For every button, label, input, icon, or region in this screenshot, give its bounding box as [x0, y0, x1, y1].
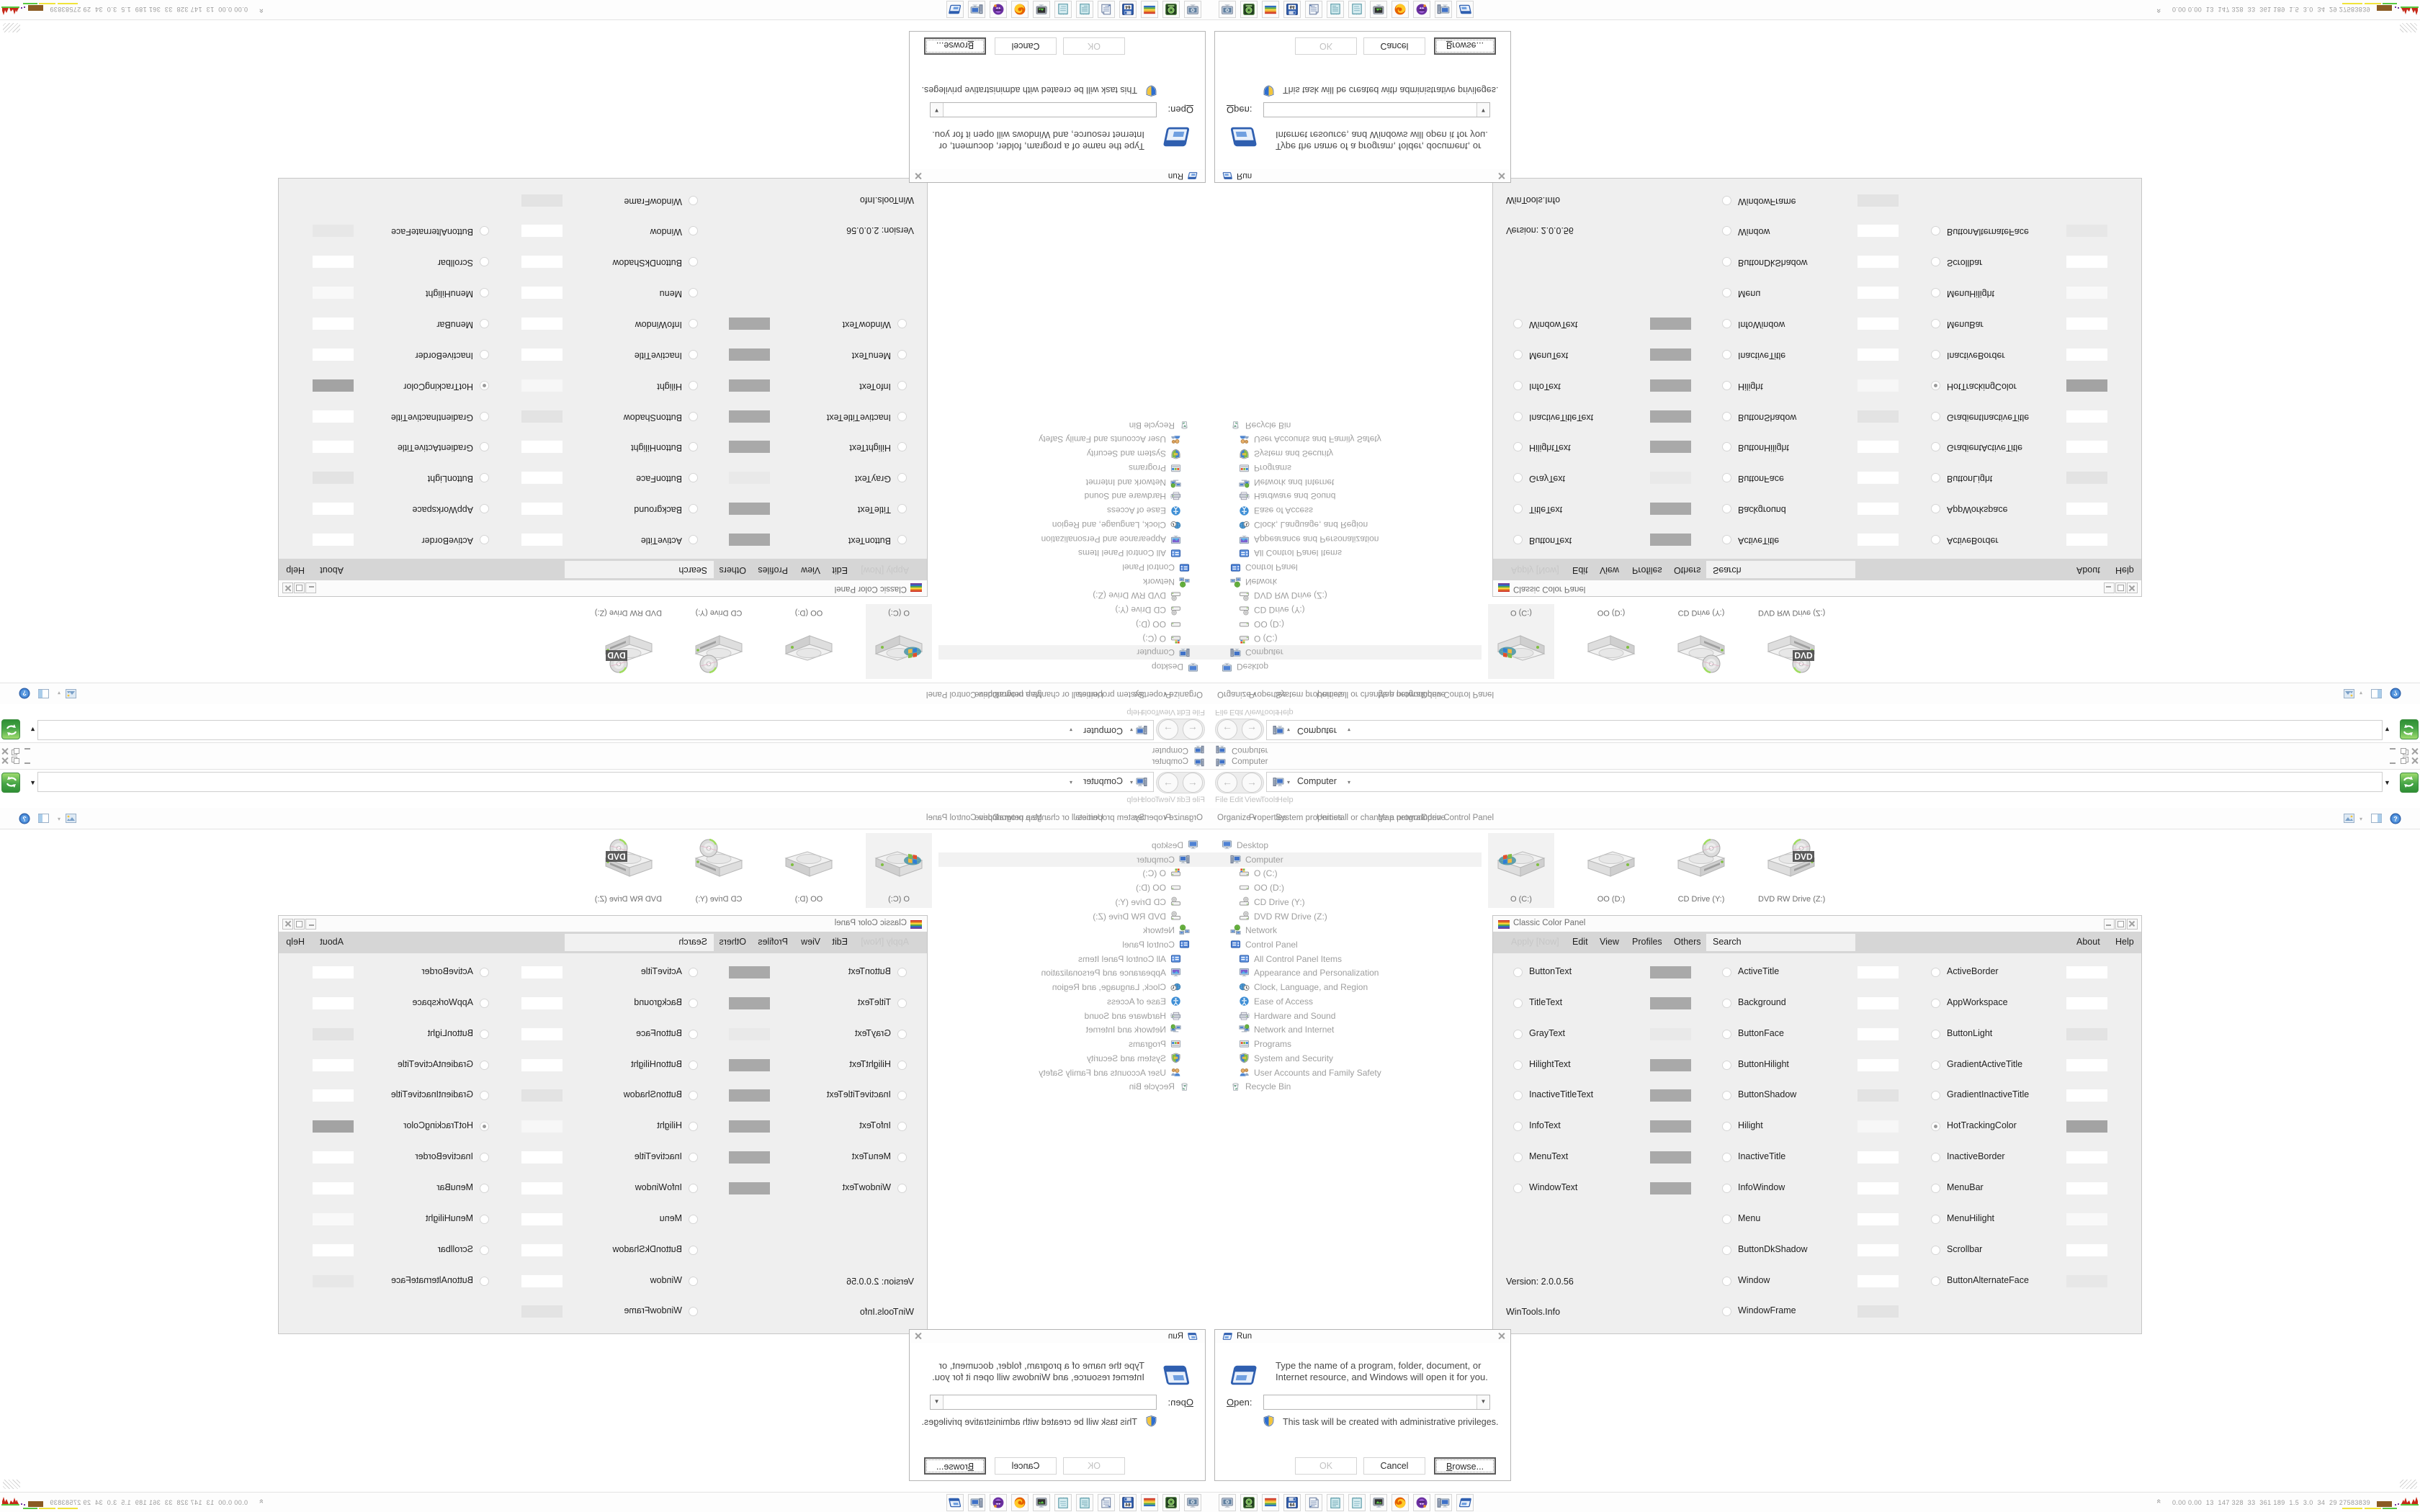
menu-item-tools[interactable]: Tools [1141, 796, 1160, 804]
color-swatch-buttonface[interactable] [521, 472, 563, 484]
color-swatch-gradientinactivetitle[interactable] [313, 410, 354, 423]
minimize-button[interactable] [2104, 582, 2115, 593]
close-icon[interactable] [282, 919, 293, 930]
search-input[interactable]: Search [1706, 934, 1855, 951]
radio-inactivetitletext[interactable] [897, 1091, 907, 1100]
color-label-scrollbar[interactable]: Scrollbar [1947, 258, 1982, 268]
color-swatch-hilighttext[interactable] [1650, 1059, 1691, 1071]
views-icon[interactable] [2344, 685, 2354, 698]
taskbar-app-notepad[interactable] [1327, 1494, 1344, 1511]
color-label-menu[interactable]: Menu [660, 289, 682, 299]
refresh-go-button[interactable] [1, 773, 20, 793]
command-open-control-panel[interactable]: Open Control Panel [1421, 814, 1494, 822]
close-icon[interactable] [1497, 171, 1506, 180]
color-swatch-gradientactivetitle[interactable] [313, 1059, 354, 1071]
color-swatch-buttonface[interactable] [1857, 1028, 1899, 1040]
help-icon[interactable]: ? [19, 813, 30, 828]
radio-gradientactivetitle[interactable] [1931, 442, 1940, 451]
ccp-menu-edit[interactable]: Edit [1572, 937, 1588, 947]
tree-item-network-and-internet[interactable]: Network and Internet [1210, 475, 1482, 490]
close-icon[interactable] [1497, 1332, 1506, 1341]
ccp-menu-about[interactable]: About [320, 937, 344, 947]
color-swatch-hilighttext[interactable] [729, 1059, 770, 1071]
radio-menuhilight[interactable] [1931, 288, 1940, 297]
color-swatch-buttonlight[interactable] [313, 1028, 354, 1040]
taskbar-app-notepad2[interactable] [1348, 1, 1366, 18]
color-swatch-hilight[interactable] [1857, 379, 1899, 392]
color-swatch-infowindow[interactable] [1857, 318, 1899, 330]
color-label-inactiveborder[interactable]: InactiveBorder [1947, 351, 2005, 361]
color-swatch-background[interactable] [1857, 503, 1899, 515]
ccp-menu-others[interactable]: Others [719, 565, 746, 575]
radio-activeborder[interactable] [480, 535, 489, 544]
tree-item-network-and-internet[interactable]: Network and Internet [938, 1022, 1210, 1037]
tree-item-recycle-bin[interactable]: Recycle Bin [938, 1079, 1210, 1094]
chevron-down-icon[interactable]: ▾ [1287, 726, 1290, 733]
cancel-button[interactable]: Cancel [995, 37, 1057, 55]
drive-tile-dvd-rw-drive-z-[interactable]: DVDDVD RW Drive (Z:) [596, 604, 662, 679]
taskbar-app-run[interactable] [946, 1494, 964, 1511]
color-swatch-buttonshadow[interactable] [521, 1089, 563, 1102]
color-label-background[interactable]: Background [1738, 505, 1786, 515]
radio-buttonshadow[interactable] [1722, 412, 1731, 421]
ccp-menu-profiles[interactable]: Profiles [1632, 565, 1662, 575]
taskbar-app-floppy-64[interactable]: 64 [1283, 1494, 1301, 1511]
color-swatch-hottrackingcolor[interactable] [2066, 379, 2107, 392]
radio-buttonface[interactable] [1722, 1030, 1731, 1039]
forward-button[interactable]: → [1242, 773, 1262, 793]
ok-button[interactable]: OK [1295, 37, 1357, 55]
radio-buttonface[interactable] [689, 473, 698, 482]
radio-infotext[interactable] [1513, 1122, 1523, 1131]
ccp-menu-profiles[interactable]: Profiles [758, 937, 788, 947]
combo-dropdown-icon[interactable]: ▼ [931, 103, 944, 117]
radio-buttondkshadow[interactable] [1722, 257, 1731, 266]
explorer-titlebar[interactable]: Computer [0, 743, 1210, 756]
color-swatch-gradientinactivetitle[interactable] [2066, 410, 2107, 423]
run-open-input[interactable] [1265, 1396, 1476, 1409]
maximize-button[interactable] [2115, 919, 2126, 930]
preview-pane-icon[interactable] [2371, 685, 2382, 698]
radio-graytext[interactable] [1513, 473, 1523, 482]
radio-buttonlight[interactable] [480, 473, 489, 482]
color-label-menutext[interactable]: MenuText [1529, 351, 1568, 361]
color-swatch-infowindow[interactable] [521, 1182, 563, 1194]
menu-item-file[interactable]: File [1215, 796, 1228, 804]
tree-item-clock-language-and-region[interactable]: Clock, Language, and Region [1210, 980, 1482, 994]
color-label-inactivetitletext[interactable]: InactiveTitleText [827, 413, 891, 423]
apply-menu-item[interactable]: Apply [Now] [1511, 937, 1559, 947]
color-swatch-menutext[interactable] [729, 1151, 770, 1164]
color-label-infotext[interactable]: InfoText [1529, 382, 1561, 392]
tree-item-user-accounts-and-family-safety[interactable]: User Accounts and Family Safety [1210, 432, 1482, 446]
menu-item-edit[interactable]: Edit [1229, 796, 1243, 804]
color-label-hilighttext[interactable]: HilightText [1529, 1059, 1571, 1069]
taskbar-app-display-settings[interactable] [1184, 1, 1201, 18]
color-label-buttonface[interactable]: ButtonFace [1738, 474, 1784, 484]
color-label-menuhilight[interactable]: MenuHilight [426, 289, 473, 299]
radio-scrollbar[interactable] [1931, 257, 1940, 266]
taskbar-app-firefox[interactable] [1391, 1494, 1409, 1511]
color-swatch-menuhilight[interactable] [2066, 1213, 2107, 1225]
tray-expand-icon[interactable]: « [2154, 1499, 2163, 1503]
color-swatch-buttondkshadow[interactable] [1857, 1244, 1899, 1256]
color-label-gradientinactivetitle[interactable]: GradientInactiveTitle [1947, 413, 2029, 423]
radio-buttonface[interactable] [689, 1030, 698, 1039]
radio-gradientactivetitle[interactable] [480, 1061, 489, 1070]
color-swatch-activeborder[interactable] [2066, 534, 2107, 546]
explorer-titlebar[interactable]: Computer [1210, 756, 2420, 769]
tree-item-system-and-security[interactable]: System and Security [938, 1051, 1210, 1066]
close-icon[interactable] [282, 582, 293, 593]
color-swatch-scrollbar[interactable] [313, 256, 354, 268]
color-label-buttonalternateface[interactable]: ButtonAlternateFace [391, 1275, 473, 1285]
drive-tile-cd-drive-y-[interactable]: CD Drive (Y:) [1668, 604, 1734, 679]
refresh-go-button[interactable] [2400, 719, 2419, 739]
ccp-menu-others[interactable]: Others [1674, 937, 1701, 947]
color-swatch-buttontext[interactable] [1650, 534, 1691, 546]
address-field[interactable]: ▾ Computer ▾ [37, 772, 1154, 792]
minimize-button[interactable] [2104, 919, 2115, 930]
color-swatch-graytext[interactable] [1650, 1028, 1691, 1040]
chevron-down-icon[interactable]: ▾ [1130, 726, 1133, 733]
radio-windowframe[interactable] [689, 1307, 698, 1316]
color-swatch-activeborder[interactable] [313, 966, 354, 978]
radio-menu[interactable] [689, 1215, 698, 1224]
ccp-menu-others[interactable]: Others [1674, 565, 1701, 575]
explorer-titlebar[interactable]: Computer [0, 756, 1210, 769]
color-swatch-inactivetitletext[interactable] [729, 410, 770, 423]
radio-appworkspace[interactable] [1931, 999, 1940, 1008]
color-label-titletext[interactable]: TitleText [858, 997, 891, 1007]
radio-hottrackingcolor[interactable] [1931, 381, 1940, 390]
color-swatch-window[interactable] [1857, 1275, 1899, 1287]
radio-buttonalternateface[interactable] [1931, 226, 1940, 235]
apply-menu-item[interactable]: Apply [Now] [861, 937, 909, 947]
tree-item-all-control-panel-items[interactable]: All Control Panel Items [1210, 546, 1482, 560]
color-label-inactivetitletext[interactable]: InactiveTitleText [1529, 1089, 1593, 1099]
radio-appworkspace[interactable] [1931, 504, 1940, 513]
color-label-buttonhilight[interactable]: ButtonHilight [631, 443, 682, 453]
run-titlebar[interactable]: Run [1215, 169, 1510, 182]
color-swatch-menuhilight[interactable] [313, 1213, 354, 1225]
color-swatch-windowtext[interactable] [1650, 1182, 1691, 1194]
color-swatch-activetitle[interactable] [1857, 534, 1899, 546]
color-swatch-background[interactable] [1857, 997, 1899, 1009]
ccp-menu-help[interactable]: Help [286, 565, 305, 575]
color-label-gradientinactivetitle[interactable]: GradientInactiveTitle [1947, 1089, 2029, 1099]
run-open-input[interactable] [944, 1396, 1155, 1409]
color-label-activetitle[interactable]: ActiveTitle [1738, 536, 1779, 546]
color-label-windowframe[interactable]: WindowFrame [1738, 1305, 1796, 1315]
cancel-button[interactable]: Cancel [995, 1457, 1057, 1475]
color-swatch-hilight[interactable] [521, 379, 563, 392]
radio-buttonlight[interactable] [1931, 473, 1940, 482]
browse-button[interactable]: Browse... [924, 1457, 986, 1475]
menu-item-file[interactable]: File [1192, 796, 1205, 804]
color-swatch-activeborder[interactable] [313, 534, 354, 546]
menu-item-view[interactable]: View [1245, 708, 1262, 716]
command-open-control-panel[interactable]: Open Control Panel [926, 690, 999, 698]
color-label-buttonshadow[interactable]: ButtonShadow [624, 413, 682, 423]
forward-button[interactable]: → [1242, 719, 1262, 739]
radio-buttontext[interactable] [897, 535, 907, 544]
color-label-activetitle[interactable]: ActiveTitle [1738, 966, 1779, 976]
radio-windowframe[interactable] [1722, 1307, 1731, 1316]
drive-tile-o-c-[interactable]: O (C:) [1488, 833, 1554, 908]
address-field[interactable]: ▾ Computer ▾ [1266, 720, 2383, 740]
color-label-hottrackingcolor[interactable]: HotTrackingColor [1947, 1120, 2017, 1130]
tree-item-network-and-internet[interactable]: Network and Internet [1210, 1022, 1482, 1037]
color-label-windowtext[interactable]: WindowText [1529, 1182, 1577, 1192]
tree-item-cd-drive-y-[interactable]: CD Drive (Y:) [1210, 895, 1482, 909]
taskbar-app-notepad2[interactable] [1054, 1, 1072, 18]
back-button[interactable]: ← [1183, 773, 1203, 793]
color-label-buttonhilight[interactable]: ButtonHilight [1738, 443, 1789, 453]
radio-titletext[interactable] [897, 999, 907, 1008]
back-button[interactable]: ← [1183, 719, 1203, 739]
color-swatch-hilighttext[interactable] [1650, 441, 1691, 453]
color-label-background[interactable]: Background [634, 505, 682, 515]
menu-item-edit[interactable]: Edit [1177, 708, 1191, 716]
color-label-inactivetitle[interactable]: InactiveTitle [1738, 1151, 1785, 1161]
taskbar-app-notepad2[interactable] [1054, 1494, 1072, 1511]
color-label-hilighttext[interactable]: HilightText [1529, 443, 1571, 453]
taskbar-app-screen-saver[interactable] [1033, 1, 1050, 18]
color-label-buttonhilight[interactable]: ButtonHilight [631, 1059, 682, 1069]
color-swatch-inactivetitle[interactable] [1857, 348, 1899, 361]
radio-buttondkshadow[interactable] [1722, 1246, 1731, 1255]
radio-activetitle[interactable] [1722, 535, 1731, 544]
tree-item-desktop[interactable]: Desktop [938, 838, 1210, 852]
address-field[interactable]: ▾ Computer ▾ [37, 720, 1154, 740]
tree-item-network-and-internet[interactable]: Network and Internet [938, 475, 1210, 490]
color-label-buttonalternateface[interactable]: ButtonAlternateFace [1947, 1275, 2029, 1285]
radio-appworkspace[interactable] [480, 999, 489, 1008]
tree-item-clock-language-and-region[interactable]: Clock, Language, and Region [938, 518, 1210, 532]
radio-infotext[interactable] [1513, 381, 1523, 390]
tree-item-computer[interactable]: Computer [938, 645, 1210, 660]
ccp-menu-profiles[interactable]: Profiles [1632, 937, 1662, 947]
radio-gradientinactivetitle[interactable] [1931, 1091, 1940, 1100]
color-label-hilight[interactable]: Hilight [1738, 1120, 1763, 1130]
search-input[interactable]: Search [1706, 561, 1855, 578]
tree-item-network[interactable]: Network [1210, 575, 1482, 589]
color-swatch-appworkspace[interactable] [2066, 997, 2107, 1009]
radio-buttonhilight[interactable] [689, 1061, 698, 1070]
taskbar-app-floppy-64[interactable]: 64 [1119, 1494, 1137, 1511]
combo-dropdown-icon[interactable]: ▼ [1476, 1395, 1489, 1409]
radio-infowindow[interactable] [689, 1184, 698, 1193]
drive-tile-o-c-[interactable]: O (C:) [1488, 604, 1554, 679]
radio-menubar[interactable] [480, 1184, 489, 1193]
taskbar-app-my-computer[interactable] [968, 1494, 985, 1511]
open-combobox[interactable]: ▼ [930, 102, 1157, 117]
menu-item-help[interactable]: Help [1277, 708, 1294, 716]
color-label-appworkspace[interactable]: AppWorkspace [412, 997, 473, 1007]
color-swatch-windowframe[interactable] [1857, 194, 1899, 207]
color-label-inactiveborder[interactable]: InactiveBorder [1947, 1151, 2005, 1161]
color-swatch-appworkspace[interactable] [313, 503, 354, 515]
ccp-menu-edit[interactable]: Edit [832, 937, 848, 947]
open-combobox[interactable]: ▼ [1263, 102, 1490, 117]
radio-buttonshadow[interactable] [689, 1091, 698, 1100]
taskbar-app-disc-burner[interactable] [1162, 1, 1180, 18]
refresh-go-button[interactable] [2400, 773, 2419, 793]
color-label-buttonlight[interactable]: ButtonLight [428, 1028, 473, 1038]
tree-item-system-and-security[interactable]: System and Security [1210, 1051, 1482, 1066]
taskbar-app-my-computer[interactable] [1435, 1, 1452, 18]
ccp-menu-edit[interactable]: Edit [832, 565, 848, 575]
radio-hottrackingcolor[interactable] [480, 381, 489, 390]
color-swatch-menubar[interactable] [313, 1182, 354, 1194]
breadcrumb[interactable]: Computer [1297, 776, 1337, 786]
color-swatch-inactiveborder[interactable] [2066, 1151, 2107, 1164]
color-swatch-menuhilight[interactable] [2066, 287, 2107, 299]
color-swatch-inactivetitletext[interactable] [1650, 410, 1691, 423]
ccp-menu-about[interactable]: About [2076, 565, 2100, 575]
color-label-buttonhilight[interactable]: ButtonHilight [1738, 1059, 1789, 1069]
tree-item-system-and-security[interactable]: System and Security [938, 446, 1210, 461]
taskbar-app-my-computer[interactable] [1435, 1494, 1452, 1511]
taskbar-app-run[interactable] [946, 1, 964, 18]
address-dropdown-icon[interactable]: ▼ [2384, 779, 2390, 786]
menu-item-tools[interactable]: Tools [1260, 796, 1279, 804]
taskbar-app-screen-saver[interactable] [1370, 1494, 1387, 1511]
taskbar-app-document-viewer[interactable] [1098, 1494, 1115, 1511]
tree-item-appearance-and-personalization[interactable]: Appearance and Personalization [1210, 966, 1482, 980]
color-label-gradientactivetitle[interactable]: GradientActiveTitle [398, 1059, 473, 1069]
preview-pane-icon[interactable] [38, 814, 49, 827]
radio-buttonhilight[interactable] [689, 442, 698, 451]
search-input[interactable]: Search [565, 561, 714, 578]
breadcrumb[interactable]: Computer [1083, 726, 1123, 736]
forward-button[interactable]: → [1158, 773, 1178, 793]
command-open-control-panel[interactable]: Open Control Panel [1421, 690, 1494, 698]
restore-button[interactable] [12, 757, 21, 765]
tree-item-recycle-bin[interactable]: Recycle Bin [1210, 1079, 1482, 1094]
radio-buttonhilight[interactable] [1722, 1061, 1731, 1070]
close-icon[interactable] [914, 171, 923, 180]
radio-scrollbar[interactable] [1931, 1246, 1940, 1255]
tree-item-clock-language-and-region[interactable]: Clock, Language, and Region [1210, 518, 1482, 532]
color-swatch-buttondkshadow[interactable] [521, 256, 563, 268]
color-swatch-activetitle[interactable] [521, 966, 563, 978]
radio-gradientactivetitle[interactable] [480, 442, 489, 451]
color-swatch-background[interactable] [521, 997, 563, 1009]
taskbar-app-document-viewer[interactable] [1305, 1494, 1322, 1511]
menu-item-file[interactable]: File [1215, 708, 1228, 716]
color-swatch-infowindow[interactable] [1857, 1182, 1899, 1194]
color-swatch-scrollbar[interactable] [313, 1244, 354, 1256]
radio-titletext[interactable] [897, 504, 907, 513]
radio-buttonlight[interactable] [1931, 1030, 1940, 1039]
restore-button[interactable] [2399, 757, 2408, 765]
color-label-buttontext[interactable]: ButtonText [848, 966, 891, 976]
ccp-menu-view[interactable]: View [801, 937, 820, 947]
radio-inactivetitle[interactable] [1722, 1153, 1731, 1162]
radio-graytext[interactable] [897, 473, 907, 482]
color-swatch-buttonshadow[interactable] [1857, 410, 1899, 423]
color-swatch-titletext[interactable] [729, 503, 770, 515]
color-swatch-buttonalternateface[interactable] [2066, 1275, 2107, 1287]
views-icon[interactable] [66, 685, 76, 698]
tree-item-ease-of-access[interactable]: Ease of Access [938, 503, 1210, 518]
menu-item-view[interactable]: View [1158, 708, 1175, 716]
ccp-menu-about[interactable]: About [320, 565, 344, 575]
color-swatch-windowframe[interactable] [521, 194, 563, 207]
taskbar-app-screen-saver[interactable] [1370, 1, 1387, 18]
views-icon[interactable] [66, 814, 76, 827]
color-swatch-titletext[interactable] [1650, 997, 1691, 1009]
color-swatch-hottrackingcolor[interactable] [313, 379, 354, 392]
minimize-button[interactable] [305, 582, 316, 593]
taskbar-app-run[interactable] [1456, 1494, 1474, 1511]
taskbar-app-document-viewer[interactable] [1098, 1, 1115, 18]
radio-buttondkshadow[interactable] [689, 257, 698, 266]
taskbar-app-firefox[interactable] [1011, 1494, 1028, 1511]
drive-tile-oo-d-[interactable]: OO (D:) [1578, 604, 1644, 679]
radio-buttonface[interactable] [1722, 473, 1731, 482]
color-swatch-menutext[interactable] [1650, 1151, 1691, 1164]
color-swatch-buttonhilight[interactable] [1857, 441, 1899, 453]
taskbar-app-display-settings[interactable] [1219, 1, 1236, 18]
taskbar-app-firefox[interactable] [1391, 1, 1409, 18]
back-button[interactable]: ← [1217, 773, 1237, 793]
views-dropdown-icon[interactable]: ▾ [2359, 690, 2362, 696]
radio-menutext[interactable] [897, 350, 907, 359]
chevron-down-icon[interactable]: ▾ [1287, 779, 1290, 786]
color-label-hilighttext[interactable]: HilightText [849, 443, 891, 453]
color-label-hottrackingcolor[interactable]: HotTrackingColor [1947, 382, 2017, 392]
radio-inactiveborder[interactable] [480, 350, 489, 359]
color-label-buttontext[interactable]: ButtonText [1529, 536, 1572, 546]
resize-grip[interactable] [3, 23, 20, 32]
color-swatch-buttontext[interactable] [1650, 966, 1691, 978]
drive-tile-dvd-rw-drive-z-[interactable]: DVDDVD RW Drive (Z:) [596, 833, 662, 908]
color-label-menutext[interactable]: MenuText [852, 351, 891, 361]
apply-menu-item[interactable]: Apply [Now] [1511, 565, 1559, 575]
menu-item-tools[interactable]: Tools [1141, 708, 1160, 716]
cancel-button[interactable]: Cancel [1363, 1457, 1425, 1475]
color-swatch-inactivetitle[interactable] [1857, 1151, 1899, 1164]
tray-expand-icon[interactable]: « [2154, 9, 2163, 13]
color-label-buttonlight[interactable]: ButtonLight [1947, 1028, 1992, 1038]
color-swatch-menubar[interactable] [2066, 318, 2107, 330]
color-label-gradientactivetitle[interactable]: GradientActiveTitle [1947, 1059, 2022, 1069]
color-label-activetitle[interactable]: ActiveTitle [641, 536, 682, 546]
minimize-button[interactable] [2388, 747, 2397, 755]
tree-item-desktop[interactable]: Desktop [1210, 660, 1482, 674]
preview-pane-icon[interactable] [2371, 814, 2382, 827]
radio-appworkspace[interactable] [480, 504, 489, 513]
taskbar-app-document-viewer[interactable] [1305, 1, 1322, 18]
color-label-infowindow[interactable]: InfoWindow [1738, 1182, 1785, 1192]
tree-item-cd-drive-y-[interactable]: CD Drive (Y:) [938, 895, 1210, 909]
ccp-titlebar[interactable]: Classic Color Panel [1493, 916, 2141, 932]
color-label-hottrackingcolor[interactable]: HotTrackingColor [403, 1120, 473, 1130]
color-label-menutext[interactable]: MenuText [852, 1151, 891, 1161]
color-swatch-windowtext[interactable] [729, 318, 770, 330]
color-label-buttonface[interactable]: ButtonFace [636, 1028, 682, 1038]
forward-button[interactable]: → [1158, 719, 1178, 739]
tray-expand-icon[interactable]: « [257, 1499, 266, 1503]
radio-menu[interactable] [1722, 1215, 1731, 1224]
color-label-titletext[interactable]: TitleText [858, 505, 891, 515]
color-label-menubar[interactable]: MenuBar [436, 1182, 473, 1192]
drive-tile-oo-d-[interactable]: OO (D:) [1578, 833, 1644, 908]
color-label-menu[interactable]: Menu [1738, 1213, 1760, 1223]
